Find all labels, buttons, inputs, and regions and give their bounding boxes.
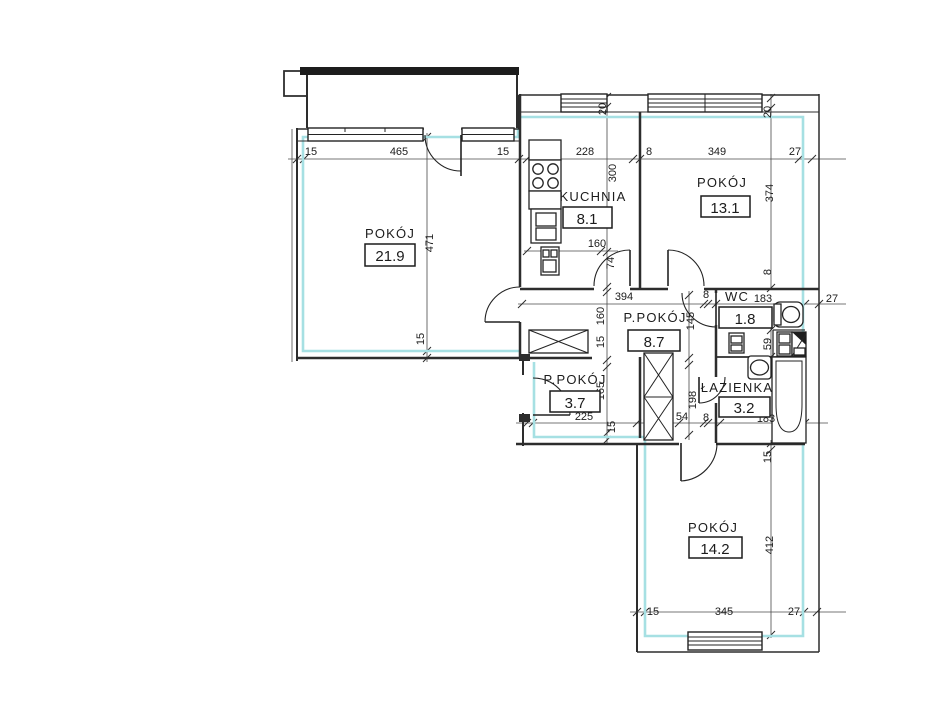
washing-machine-symbol bbox=[792, 332, 806, 356]
kitchen-sink-symbol bbox=[531, 209, 561, 243]
dim-label: 15 bbox=[415, 333, 427, 345]
vent-shaft-symbol bbox=[529, 330, 588, 353]
dim-label: 59 bbox=[762, 338, 774, 350]
kitchen-counter bbox=[529, 191, 561, 209]
dim-label: 15 bbox=[595, 336, 607, 348]
dim-label: 345 bbox=[715, 606, 733, 618]
dim-label: 15 bbox=[762, 451, 774, 463]
dim-label: 160 bbox=[595, 307, 607, 325]
floor-plan-page: 15 465 15 228 8 349 27 20 300 20 374 471… bbox=[0, 0, 950, 720]
washbasin-symbol bbox=[748, 356, 771, 379]
dim-label: 374 bbox=[764, 184, 776, 202]
kitchen-fixtures bbox=[529, 140, 561, 275]
dim-label: 15 bbox=[606, 421, 618, 433]
room-label-ppokoj-8-7: P.POKÓJ bbox=[623, 310, 686, 325]
dim-label: 27 bbox=[826, 293, 838, 305]
room-label-ppokoj-3-7: P.POKÓJ bbox=[543, 372, 606, 387]
dim-label: 20 bbox=[597, 103, 609, 115]
kitchen-small-sink-symbol bbox=[541, 247, 559, 275]
window-room-21-9-a bbox=[308, 128, 423, 141]
room-label-pokoj-21-9: POKÓJ bbox=[365, 226, 415, 241]
dim-label: 183 bbox=[754, 293, 772, 305]
dim-label: 8 bbox=[703, 412, 709, 424]
room-label-pokoj-14-2: POKÓJ bbox=[688, 520, 738, 535]
stove-symbol bbox=[529, 160, 561, 191]
dim-label: 300 bbox=[607, 164, 619, 182]
dim-label: 412 bbox=[764, 536, 776, 554]
room-14-2-door bbox=[681, 443, 717, 481]
room-label-pokoj-13-1: POKÓJ bbox=[697, 175, 747, 190]
balcony bbox=[284, 67, 519, 128]
window-room-14-2 bbox=[688, 632, 762, 650]
room-21-9-door bbox=[485, 287, 520, 322]
room-labels: POKÓJ 21.9 KUCHNIA 8.1 POKÓJ 13.1 P.POKÓ… bbox=[365, 175, 773, 558]
dim-label: 471 bbox=[424, 234, 436, 252]
kitchen-counter bbox=[529, 140, 561, 160]
dim-label: 15 bbox=[305, 146, 317, 158]
balcony-door bbox=[425, 135, 461, 176]
dim-label: 225 bbox=[575, 411, 593, 423]
balcony-parapet bbox=[300, 67, 519, 75]
dim-label: 228 bbox=[576, 146, 594, 158]
dim-label: 8 bbox=[762, 269, 774, 275]
dim-label: 15 bbox=[647, 606, 659, 618]
room-area-value: 8.7 bbox=[644, 334, 665, 351]
dim-label: 8 bbox=[646, 146, 652, 158]
room-area-value: 8.1 bbox=[577, 211, 598, 228]
dim-label: 8 bbox=[703, 289, 709, 301]
wall-end-cap bbox=[519, 354, 530, 361]
floor-plan-canvas: 15 465 15 228 8 349 27 20 300 20 374 471… bbox=[0, 0, 950, 720]
wc-vanity-symbol bbox=[729, 333, 744, 353]
wall-end-cap bbox=[519, 414, 530, 422]
room-area-value: 21.9 bbox=[375, 248, 404, 265]
room-area-value: 14.2 bbox=[700, 541, 729, 558]
dim-label: 27 bbox=[789, 146, 801, 158]
dim-label: 198 bbox=[687, 391, 699, 409]
bathtub-symbol bbox=[772, 357, 806, 443]
dim-label: 145 bbox=[685, 312, 697, 330]
dim-label: 465 bbox=[390, 146, 408, 158]
dim-label: 27 bbox=[788, 606, 800, 618]
dim-label: 349 bbox=[708, 146, 726, 158]
doors bbox=[425, 135, 725, 481]
room-13-1-door bbox=[668, 250, 704, 286]
dim-label: 20 bbox=[762, 106, 774, 118]
room-label-kuchnia: KUCHNIA bbox=[560, 189, 627, 204]
dim-label: 15 bbox=[497, 146, 509, 158]
room-area-value: 13.1 bbox=[710, 200, 739, 217]
dim-label: 74 bbox=[605, 257, 617, 269]
toilet-symbol bbox=[774, 302, 803, 327]
room-label-lazienka: ŁAZIENKA bbox=[701, 380, 773, 395]
room-area-value: 3.2 bbox=[734, 400, 755, 417]
window-room-13-1 bbox=[648, 94, 762, 112]
room-label-wc: WC bbox=[725, 289, 749, 304]
dim-label: 160 bbox=[588, 238, 606, 250]
room-area-value: 3.7 bbox=[565, 395, 586, 412]
room-area-value: 1.8 bbox=[735, 311, 756, 328]
vent-shaft-symbol bbox=[644, 353, 673, 440]
dim-label: 54 bbox=[676, 411, 688, 423]
dim-label: 394 bbox=[615, 291, 633, 303]
window-room-21-9-b bbox=[462, 128, 514, 141]
utility-sink-symbol bbox=[777, 332, 792, 356]
